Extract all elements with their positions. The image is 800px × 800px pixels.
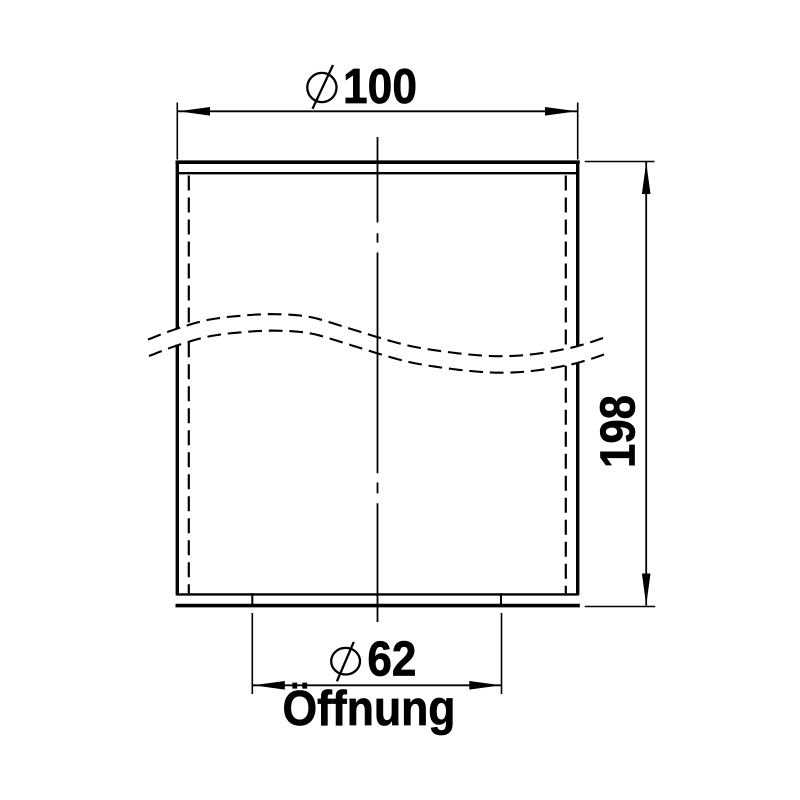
svg-text:Öffnung: Öffnung [283,682,456,736]
svg-text:100: 100 [343,60,417,114]
svg-text:62: 62 [367,633,416,687]
svg-text:198: 198 [592,395,646,468]
